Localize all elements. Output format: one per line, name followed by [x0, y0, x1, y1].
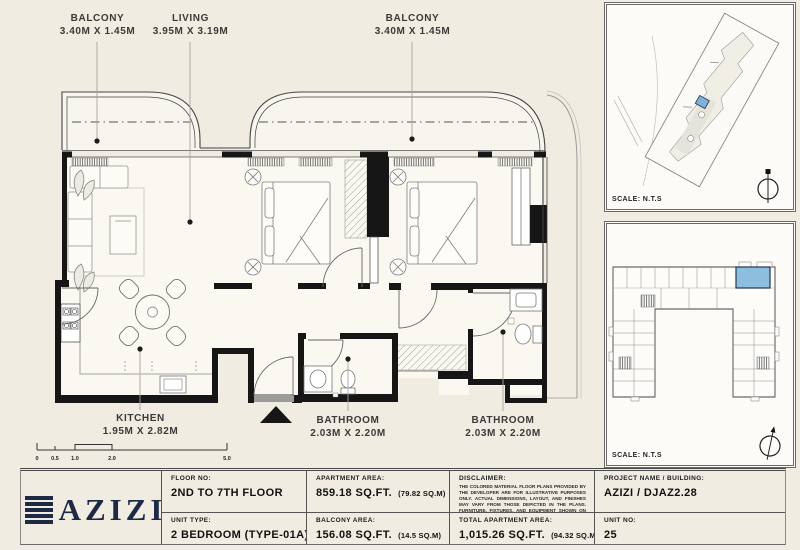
- room-dims: 2.03M X 2.20M: [290, 427, 406, 440]
- dining-table: [117, 277, 188, 348]
- unit-type-label: UNIT TYPE:: [171, 517, 306, 524]
- leader-dots: [94, 136, 505, 361]
- door-swings: [62, 248, 516, 396]
- balcony-left-outline: [62, 92, 200, 150]
- room-name: BATHROOM: [290, 414, 406, 427]
- floor-no-value: 2ND TO 7TH FLOOR: [171, 487, 306, 499]
- site-map-panel: [604, 2, 796, 212]
- unit-type-cell: UNIT TYPE: 2 BEDROOM (TYPE-01A): [161, 512, 306, 544]
- entrance-marker: [260, 406, 292, 423]
- svg-text:1.0: 1.0: [71, 456, 79, 462]
- unit-info-table: AZIZI FLOOR NO: 2ND TO 7TH FLOOR APARTME…: [20, 468, 786, 545]
- corridor-hatch: [396, 345, 466, 370]
- bathroom-2-fixtures: [508, 289, 542, 344]
- room-name: KITCHEN: [83, 412, 198, 425]
- balcony-area-label: BALCONY AREA:: [316, 517, 449, 524]
- room-name: BATHROOM: [445, 414, 561, 427]
- bedroom-2-furniture: [390, 168, 530, 275]
- apartment-area-sqm: (79.82 SQ.M): [398, 489, 445, 498]
- window-wall: [62, 151, 545, 167]
- svg-text:0: 0: [35, 456, 38, 462]
- floorplan-brochure-page: { "colors": { "background": "#f0ece1", "…: [0, 0, 800, 550]
- room-name: BALCONY: [355, 12, 470, 25]
- bathroom-1-fixtures: [304, 366, 355, 397]
- apartment-area-label: APARTMENT AREA:: [316, 475, 449, 482]
- unit-no-label: UNIT NO:: [604, 517, 785, 524]
- balcony-right-outline: [250, 92, 545, 152]
- total-area-value: 1,015.26 SQ.FT.(94.32 SQ.M): [459, 529, 594, 541]
- balcony-area-value: 156.08 SQ.FT.(14.5 SQ.M): [316, 529, 449, 541]
- svg-text:5.0: 5.0: [223, 456, 231, 462]
- closet-1-hatch: [345, 160, 367, 238]
- leader-lines: [97, 42, 503, 411]
- apartment-area-cell: APARTMENT AREA: 859.18 SQ.FT.(79.82 SQ.M…: [306, 471, 449, 512]
- apartment-floor-plan: 0 0.5 1.0 2.0 5.0: [35, 42, 581, 462]
- room-dims: 1.95M X 2.82M: [83, 425, 198, 438]
- unit-no-value: 25: [604, 529, 785, 541]
- room-dims: 3.40M X 1.45M: [355, 25, 470, 38]
- room-label-bathroom-2: BATHROOM 2.03M X 2.20M: [445, 414, 561, 440]
- balcony-area-cell: BALCONY AREA: 156.08 SQ.FT.(14.5 SQ.M): [306, 512, 449, 544]
- living-room-furniture: [68, 166, 144, 292]
- room-dims: 2.03M X 2.20M: [445, 427, 561, 440]
- balcony-area-sqm: (14.5 SQ.M): [398, 531, 441, 540]
- room-label-living: LIVING 3.95M X 3.19M: [133, 12, 248, 38]
- room-dims: 3.95M X 3.19M: [133, 25, 248, 38]
- walls: [55, 152, 547, 424]
- azizi-logo-text: AZIZI: [59, 494, 161, 525]
- total-area-sqm: (94.32 SQ.M): [551, 531, 594, 540]
- scale-bar-labels: 0 0.5 1.0 2.0 5.0: [35, 456, 230, 462]
- azizi-logo: AZIZI: [21, 471, 161, 544]
- disclaimer-cell: DISCLAIMER: THE COLORED MATERIAL FLOOR P…: [449, 471, 594, 512]
- project-name-label: PROJECT NAME / BUILDING:: [604, 475, 785, 482]
- room-name: LIVING: [133, 12, 248, 25]
- room-label-balcony-right: BALCONY 3.40M X 1.45M: [355, 12, 470, 38]
- building-envelope-line: [547, 91, 581, 398]
- unit-no-cell: UNIT NO: 25: [594, 512, 785, 544]
- total-area-label: TOTAL APARTMENT AREA:: [459, 517, 594, 524]
- entrance-threshold: [254, 394, 294, 402]
- room-label-bathroom-1: BATHROOM 2.03M X 2.20M: [290, 414, 406, 440]
- floor-no-cell: FLOOR NO: 2ND TO 7TH FLOOR: [161, 471, 306, 512]
- wardrobe-2: [512, 168, 530, 245]
- project-name-value: AZIZI / DJAZ2.28: [604, 487, 785, 499]
- project-name-cell: PROJECT NAME / BUILDING: AZIZI / DJAZ2.2…: [594, 471, 785, 512]
- key-plan-scale-note: SCALE: N.T.S: [612, 452, 662, 459]
- scale-bar: [37, 443, 227, 450]
- site-map-scale-note: SCALE: N.T.S: [612, 196, 662, 203]
- disclaimer-label: DISCLAIMER:: [459, 475, 594, 482]
- svg-text:2.0: 2.0: [108, 456, 116, 462]
- kitchen-counter: [61, 288, 214, 393]
- bedroom-1-furniture: [245, 160, 367, 275]
- svg-text:0.5: 0.5: [51, 456, 59, 462]
- floor-no-label: FLOOR NO:: [171, 475, 306, 482]
- key-plan-panel: [604, 221, 796, 468]
- azizi-logo-bars-icon: [25, 496, 53, 524]
- room-label-kitchen: KITCHEN 1.95M X 2.82M: [83, 412, 198, 438]
- disclaimer-text: THE COLORED MATERIAL FLOOR PLANS PROVIDE…: [459, 484, 586, 512]
- apartment-area-value: 859.18 SQ.FT.(79.82 SQ.M): [316, 487, 449, 499]
- total-area-cell: TOTAL APARTMENT AREA: 1,015.26 SQ.FT.(94…: [449, 512, 594, 544]
- unit-type-value: 2 BEDROOM (TYPE-01A): [171, 529, 306, 541]
